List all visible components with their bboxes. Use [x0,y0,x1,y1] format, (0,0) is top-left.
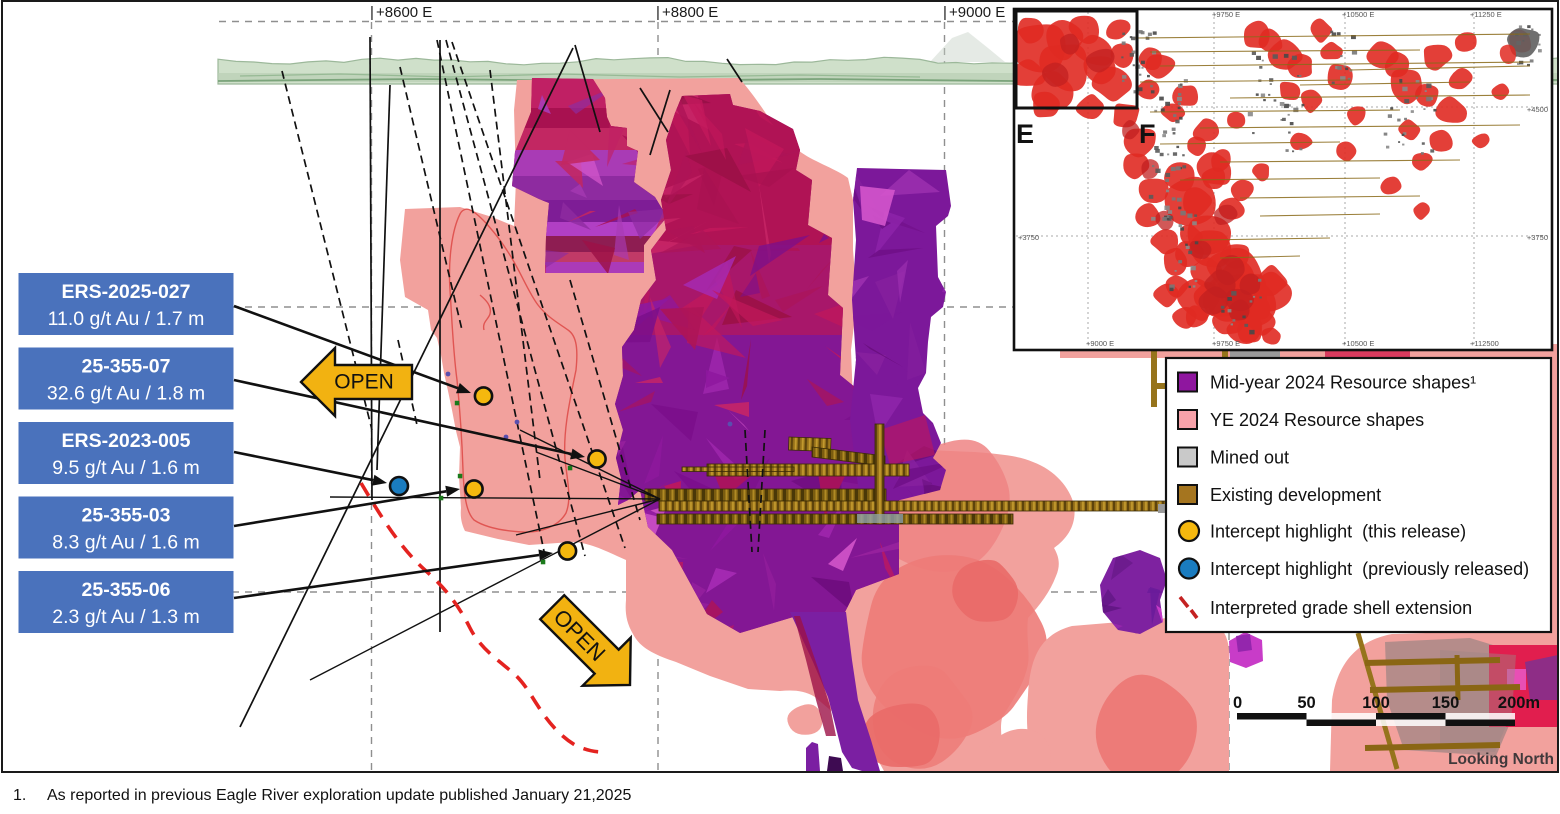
svg-text:Mined out: Mined out [1210,448,1289,468]
svg-text:|: | [943,4,947,21]
svg-text:0: 0 [1233,694,1242,712]
svg-text:+9750 E: +9750 E [1212,10,1240,19]
svg-text:2.3 g/t Au / 1.3 m: 2.3 g/t Au / 1.3 m [52,606,199,628]
svg-text:Interpreted grade shell extens: Interpreted grade shell extension [1210,598,1472,618]
svg-text:+9750 E: +9750 E [1212,339,1240,348]
svg-text:9.5 g/t Au / 1.6 m: 9.5 g/t Au / 1.6 m [52,457,199,479]
svg-text:200m: 200m [1498,694,1540,712]
svg-text:+3750: +3750 [1527,233,1548,242]
svg-text:E: E [1016,119,1034,149]
svg-text:Intercept highlight (previous: Intercept highlight (previously released… [1210,559,1529,579]
svg-text:8.3 g/t Au / 1.6 m: 8.3 g/t Au / 1.6 m [52,532,199,554]
svg-text:+9000 E: +9000 E [949,4,1005,21]
svg-text:+10500 E: +10500 E [1342,339,1374,348]
svg-text:+10500 E: +10500 E [1342,10,1374,19]
svg-text:150: 150 [1432,694,1460,712]
svg-text:Intercept highlight (this rel: Intercept highlight (this release) [1210,522,1466,542]
svg-text:25-355-03: 25-355-03 [82,505,171,527]
svg-text:+8800 E: +8800 E [662,4,718,21]
svg-text:ERS-2023-005: ERS-2023-005 [62,430,191,452]
svg-text:+9000 E: +9000 E [1086,339,1114,348]
svg-text:ERS-2025-027: ERS-2025-027 [62,281,191,303]
svg-text:25-355-06: 25-355-06 [82,579,171,601]
svg-text:25-355-07: 25-355-07 [82,356,171,378]
svg-text:+11250 E: +11250 E [1470,10,1502,19]
svg-text:|: | [370,4,374,21]
svg-text:+3750: +3750 [1018,233,1039,242]
svg-text:32.6 g/t Au / 1.8 m: 32.6 g/t Au / 1.8 m [47,383,205,405]
svg-text:+112500: +112500 [1470,339,1499,348]
svg-text:+8600 E: +8600 E [376,4,432,21]
svg-text:|: | [656,4,660,21]
svg-text:50: 50 [1297,694,1315,712]
svg-text:As reported in previous Eagle: As reported in previous Eagle River expl… [47,787,631,804]
svg-text:OPEN: OPEN [334,371,394,394]
svg-text:11.0 g/t Au / 1.7 m: 11.0 g/t Au / 1.7 m [48,308,205,330]
svg-text:YE 2024 Resource shapes: YE 2024 Resource shapes [1210,410,1424,430]
svg-text:1.: 1. [13,787,26,804]
svg-text:Looking North: Looking North [1448,751,1554,768]
svg-text:100: 100 [1362,694,1390,712]
svg-text:F: F [1139,119,1156,149]
svg-text:Mid-year 2024 Resource shapes¹: Mid-year 2024 Resource shapes¹ [1210,373,1476,393]
svg-text:Existing development: Existing development [1210,485,1381,505]
svg-text:+4500: +4500 [1527,105,1548,114]
